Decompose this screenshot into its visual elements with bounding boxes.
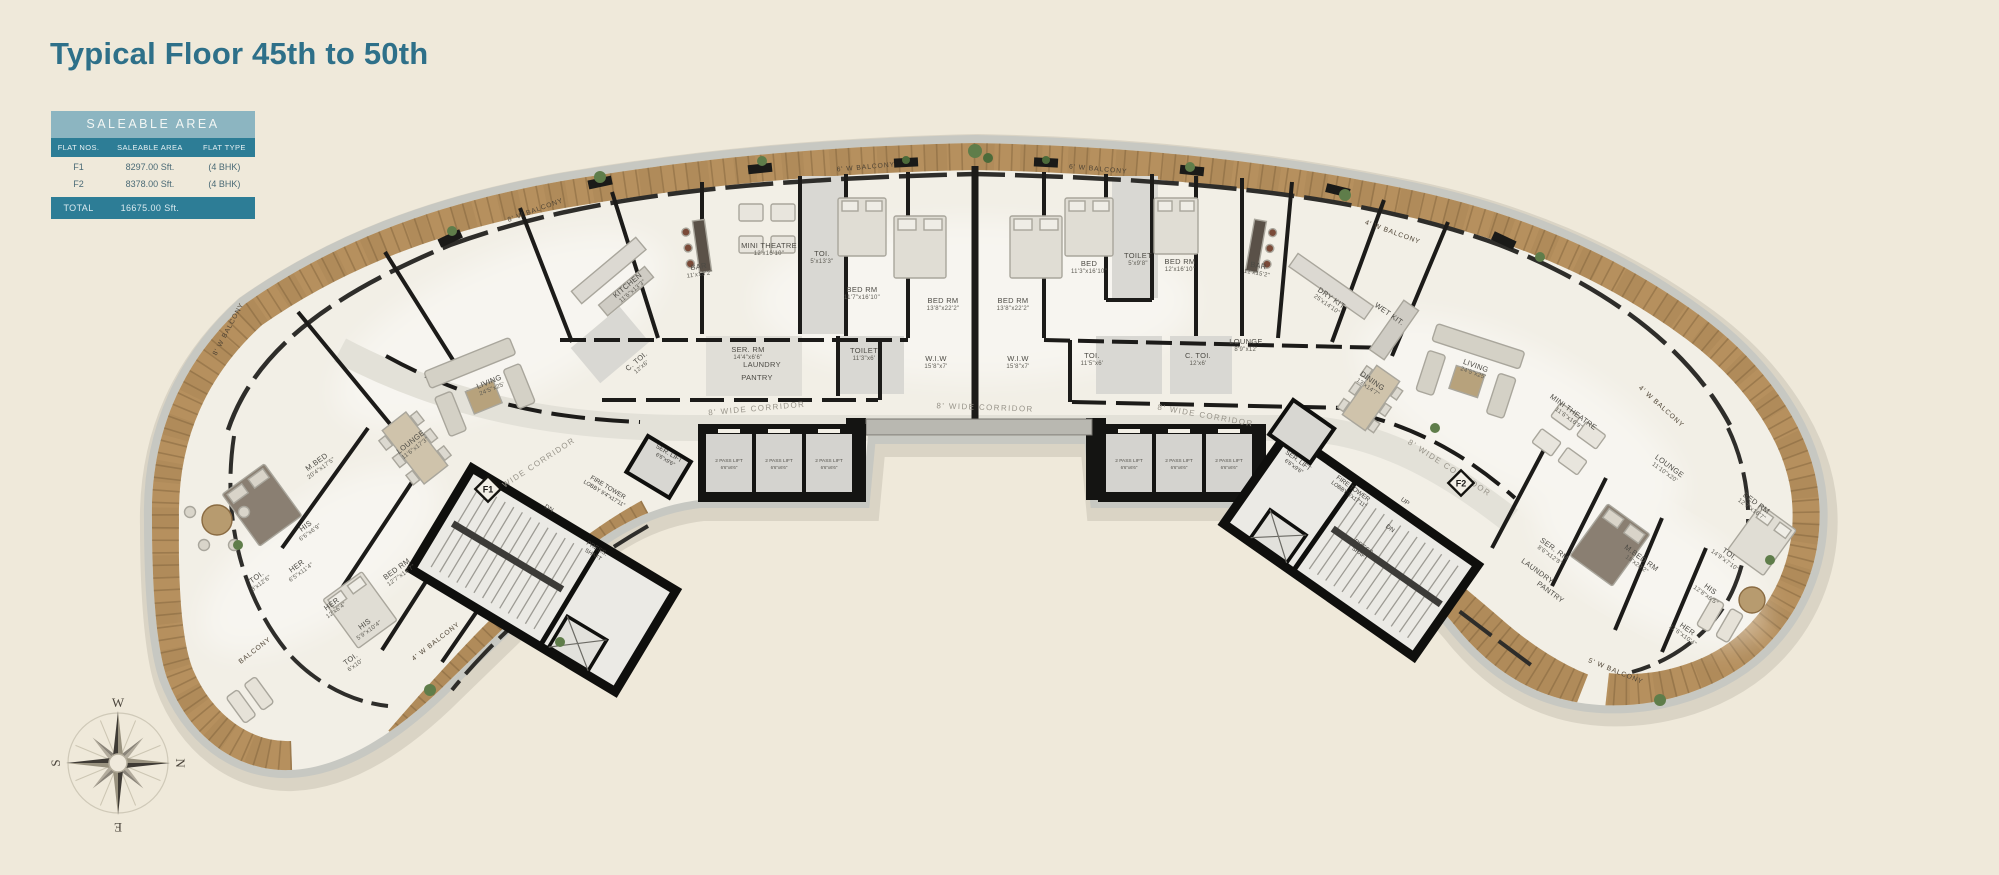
compass-letter-W: W <box>112 695 125 710</box>
compass-letter-N: N <box>173 758 188 768</box>
floor-plan-canvas: LIVING24'5"x25'LOUNGE11'6"x17'3"M.BED20'… <box>0 0 1999 875</box>
bridge-corridor <box>846 418 1106 500</box>
compass-rose: WNES <box>48 695 188 835</box>
brochure-page: { "page": { "title": "Typical Floor 45th… <box>0 0 1999 875</box>
room-label: PANTRY <box>741 373 773 382</box>
room-label: BED RM11'7"x16'10" <box>844 285 880 301</box>
room-label: BED RM13'8"x22'2" <box>927 296 960 312</box>
compass-letter-E: E <box>114 820 122 835</box>
room-label: BED RM12'x16'10" <box>1165 257 1196 273</box>
room-label: W.I.W15'8"x7' <box>1006 354 1029 370</box>
room-label: LAUNDRY <box>743 360 781 369</box>
room-label: SER. RM14'4"x6'6" <box>731 345 764 361</box>
compass-letter-S: S <box>48 759 63 766</box>
room-label: TOILET11'3"x6' <box>850 346 878 362</box>
svg-text:F1: F1 <box>483 485 494 495</box>
svg-text:F2: F2 <box>1456 479 1467 489</box>
room-label: W.I.W15'8"x7' <box>924 354 947 370</box>
room-label: BED RM13'8"x22'2" <box>997 296 1030 312</box>
